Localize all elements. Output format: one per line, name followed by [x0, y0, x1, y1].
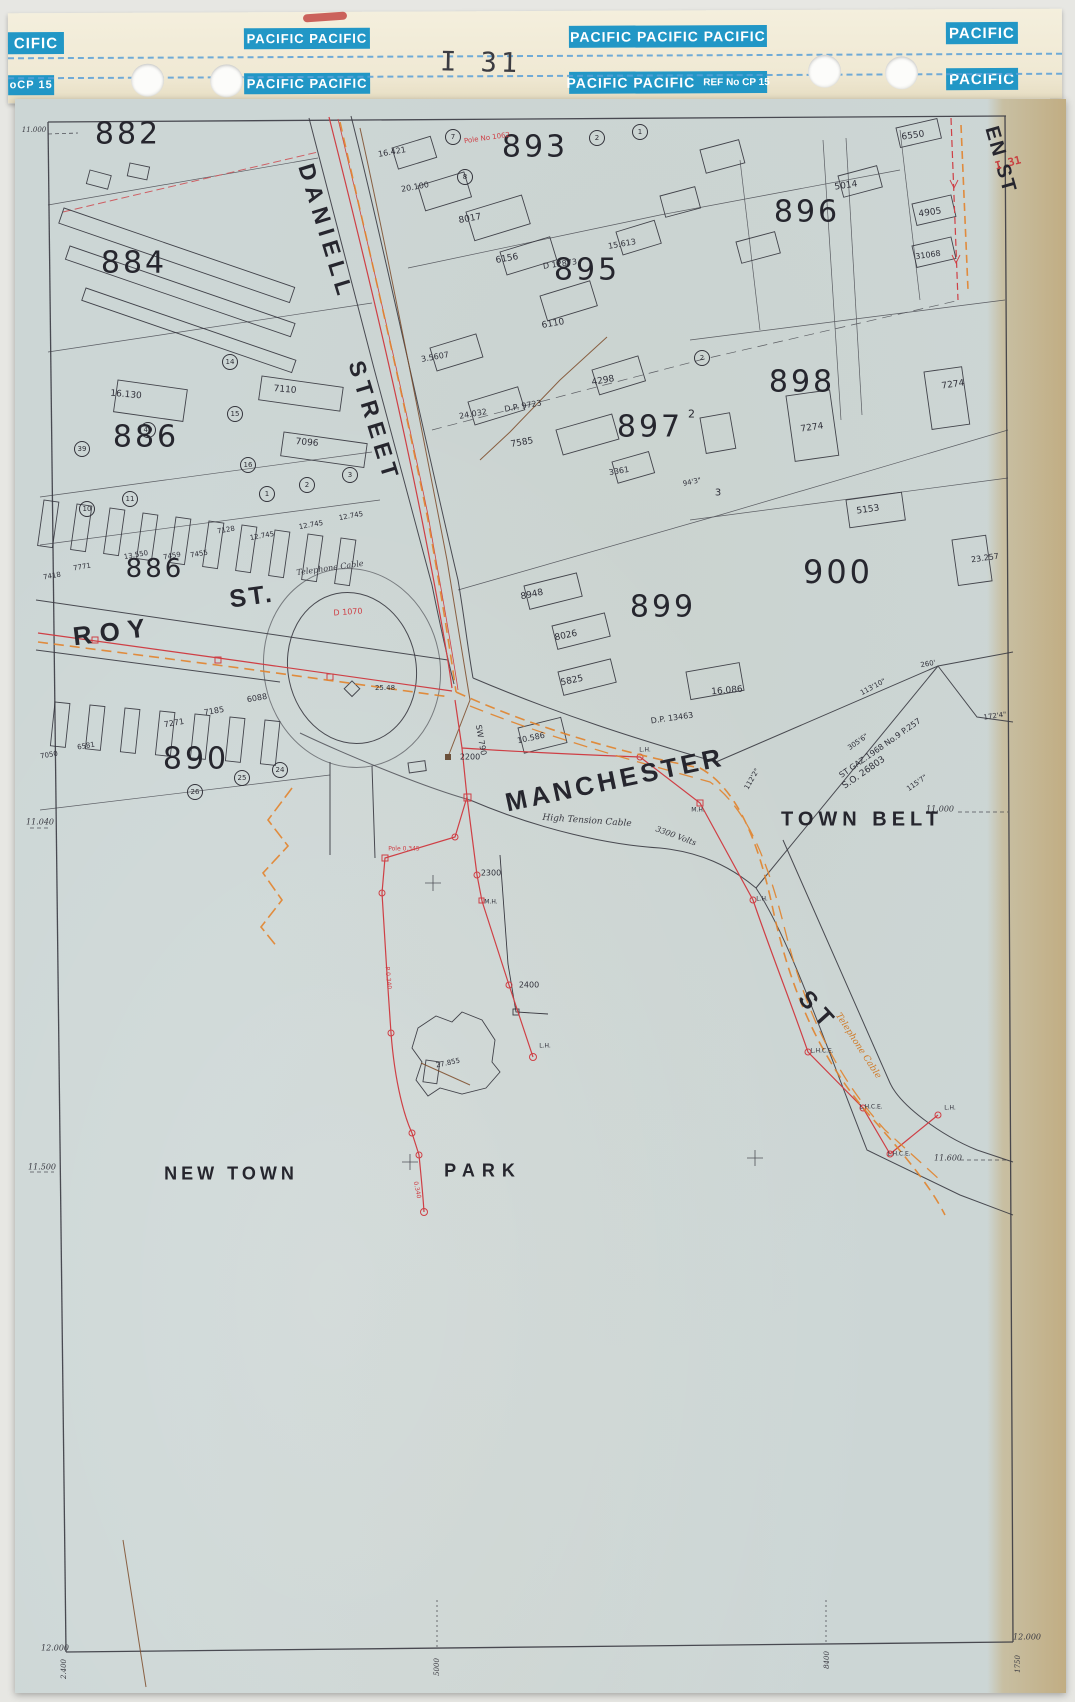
map-label: L.H. [539, 1043, 551, 1050]
lot-number-circle: 2 [299, 477, 315, 493]
pacific-block: PACIFIC PACIFIC PACIFIC [569, 25, 767, 48]
map-label: 12.000 [1013, 1633, 1041, 1642]
map-label: 11.040 [26, 818, 54, 827]
map-label: 893 [502, 130, 568, 165]
map-label: L.H.C.E. [810, 1048, 833, 1055]
pacific-blocks: CIFICPACIFIC PACIFICPACIFIC PACIFIC PACI… [8, 9, 1062, 14]
map-label: 2400 [519, 981, 539, 990]
binder-dashed-lines [8, 9, 1062, 14]
map-label: 895 [554, 253, 620, 288]
map-paper [15, 99, 1066, 1693]
map-label: TOWN BELT [781, 809, 943, 832]
map-label: Pole 0.345 [388, 846, 420, 853]
map-label: 12.000 [41, 1644, 69, 1653]
punch-hole [210, 64, 243, 97]
map-label: L.H.C.E. [887, 1151, 910, 1158]
map-label: 2 [688, 408, 698, 421]
map-label: 11.000 [926, 805, 954, 814]
map-label: L.H. [639, 747, 651, 754]
punch-hole [131, 64, 164, 97]
map-label: 890 [163, 742, 229, 777]
lot-number-circle: 26 [187, 784, 203, 800]
map-label: 3 [715, 488, 721, 499]
lot-number-circle: 1 [632, 124, 648, 140]
map-label: 896 [774, 195, 840, 230]
pacific-block: CIFIC [8, 32, 64, 54]
handwritten-sheet-number: I 31 [440, 46, 522, 79]
map-label: ST. [228, 580, 277, 615]
lot-number-circle: 15 [227, 406, 243, 422]
map-label: M.H. [484, 899, 497, 906]
pacific-block: PACIFIC PACIFIC [244, 28, 370, 50]
map-label: 11.500 [28, 1163, 56, 1172]
map-label: 884 [101, 246, 167, 281]
map-label: 2.400 [60, 1659, 68, 1679]
lot-number-circle: 2 [694, 350, 710, 366]
lot-number-circle: 8 [457, 169, 473, 185]
map-label: 900 [803, 553, 873, 591]
lot-number-circle: 40 [140, 422, 156, 438]
map-label: 5000 [433, 1658, 441, 1676]
map-label: 882 [95, 117, 161, 152]
lot-number-circle: 11 [122, 491, 138, 507]
map-label: 25.48 [375, 684, 395, 692]
binder-strip: CIFICPACIFIC PACIFICPACIFIC PACIFIC PACI… [8, 9, 1062, 104]
map-label: 2300 [481, 869, 501, 878]
lot-number-circle: 39 [74, 441, 90, 457]
map-label: 899 [630, 590, 696, 625]
pacific-block: PACIFIC [946, 68, 1018, 90]
punch-hole [808, 55, 841, 88]
lot-number-circle: 25 [234, 770, 250, 786]
map-label: 1750 [1014, 1655, 1022, 1673]
map-label: 898 [769, 365, 835, 400]
map-label: 897 [617, 410, 683, 445]
lot-number-circle: 14 [222, 354, 238, 370]
scanned-map-sheet: CIFICPACIFIC PACIFICPACIFIC PACIFIC PACI… [0, 0, 1075, 1702]
punch-holes [8, 9, 1062, 14]
map-label: 7110 [273, 384, 297, 396]
map-label: M.H. [691, 807, 704, 814]
map-label: L.H. [756, 896, 768, 903]
pacific-block: PACIFIC [946, 22, 1018, 44]
map-label: PARK [444, 1161, 522, 1182]
lot-number-circle: 2 [589, 130, 605, 146]
lot-number-circle: 3 [342, 467, 358, 483]
map-label: 8400 [823, 1651, 831, 1669]
lot-number-circle: 10 [79, 501, 95, 517]
map-label: L.H. [944, 1105, 956, 1112]
map-label: 11.000 [22, 126, 47, 134]
map-label: L.H.C.E. [859, 1104, 882, 1111]
lot-number-circle: 7 [445, 129, 461, 145]
punch-hole [885, 56, 918, 89]
lot-number-circle: 16 [240, 457, 256, 473]
map-label: 7096 [295, 437, 319, 449]
map-label: NEW TOWN [164, 1164, 298, 1185]
lot-number-circle: 1 [259, 486, 275, 502]
map-label: 11.600 [934, 1154, 962, 1163]
map-label: 2200 [460, 753, 480, 762]
lot-number-circle: 24 [272, 762, 288, 778]
